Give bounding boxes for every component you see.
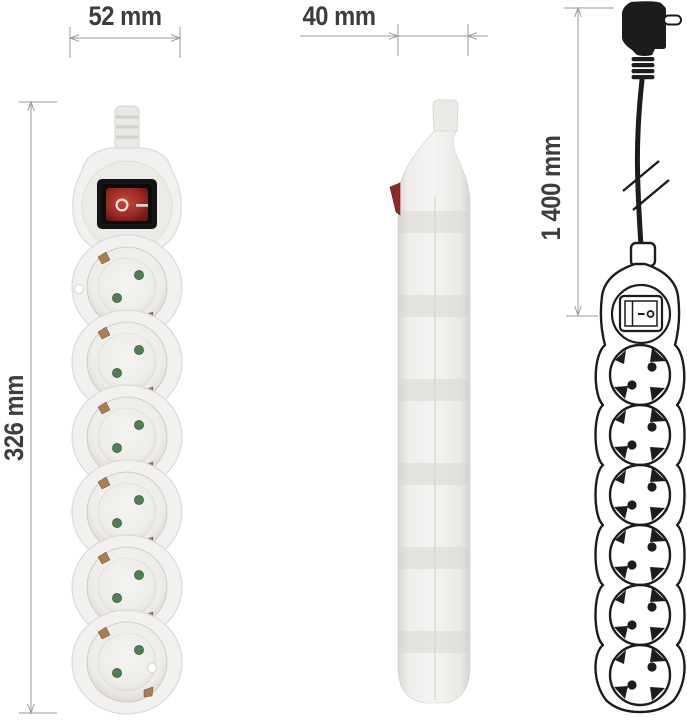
switch-on-symbol — [136, 204, 148, 207]
cable — [637, 80, 642, 246]
dimension-front-width-lines — [70, 27, 180, 58]
screw-hole — [75, 285, 84, 294]
dimension-side-width-label: 40 mm — [291, 1, 388, 31]
dimension-strip-length-label: 326 mm — [0, 365, 29, 471]
socket — [610, 465, 670, 525]
dimension-front-width-label: 52 mm — [77, 1, 174, 31]
outline-cable-entry — [631, 243, 655, 266]
screw-hole — [148, 664, 157, 673]
socket — [610, 645, 670, 705]
side-view — [390, 100, 470, 703]
front-socket-rail — [72, 235, 182, 714]
socket — [610, 405, 670, 465]
socket — [610, 345, 670, 405]
socket — [610, 525, 670, 585]
outline-view — [595, 1, 684, 712]
dimension-cable-length-lines — [564, 8, 614, 316]
strain-relief — [632, 57, 655, 79]
socket — [72, 610, 182, 714]
side-switch — [390, 183, 400, 215]
plug-pin — [664, 16, 681, 25]
diagram-artwork — [0, 0, 687, 720]
power-switch[interactable] — [97, 179, 157, 229]
plug-icon — [622, 1, 681, 79]
product-dimension-diagram: 52 mm 40 mm 326 mm 1 400 mm — [0, 0, 687, 720]
dimension-cable-length-label: 1 400 mm — [536, 122, 566, 254]
cable-break-icon — [623, 161, 669, 210]
socket — [610, 585, 670, 645]
side-cable-entry — [433, 100, 458, 131]
front-view — [72, 106, 182, 714]
cable-entry — [115, 106, 139, 150]
